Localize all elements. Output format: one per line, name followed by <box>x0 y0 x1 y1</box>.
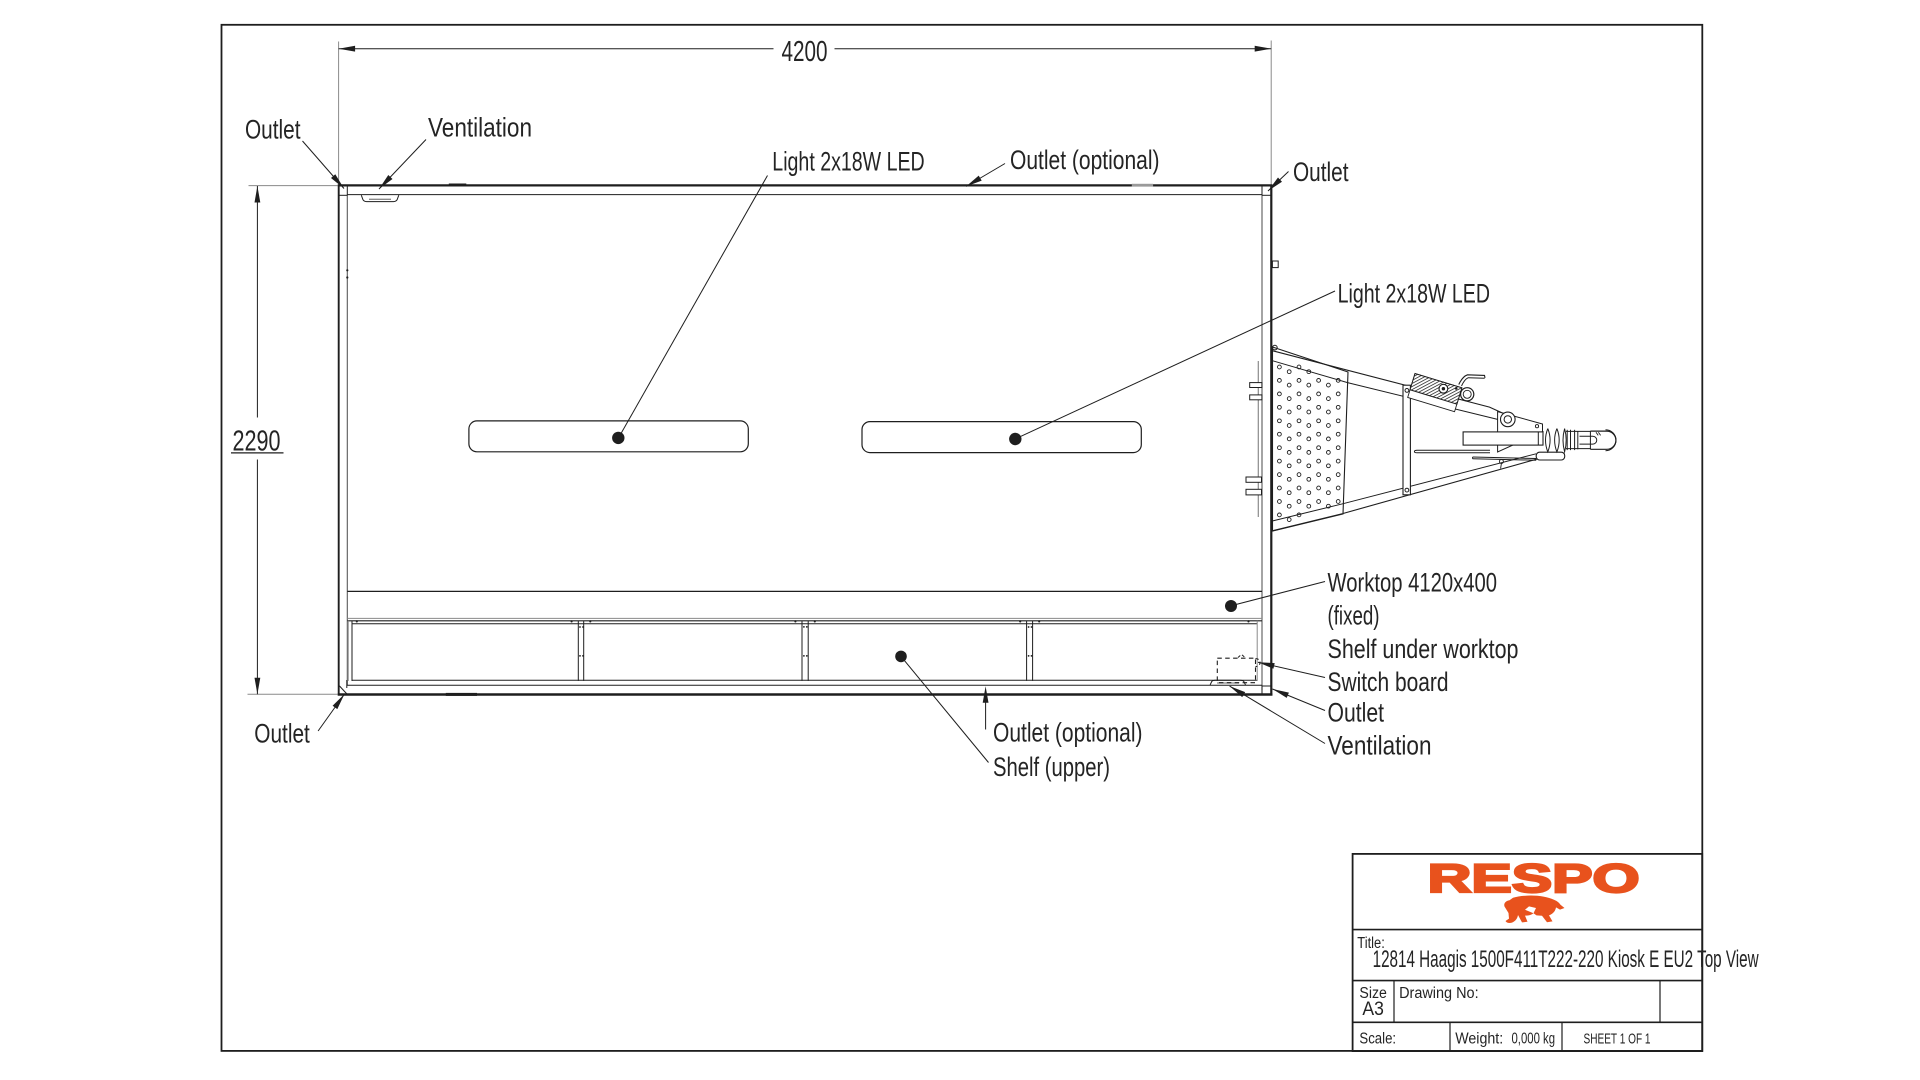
svg-text:Outlet (optional): Outlet (optional) <box>1010 145 1160 175</box>
svg-text:Ventilation: Ventilation <box>1328 731 1432 761</box>
svg-text:Shelf under worktop: Shelf under worktop <box>1328 634 1519 664</box>
svg-text:Worktop 4120x400: Worktop 4120x400 <box>1328 567 1498 597</box>
svg-text:12814 Haagis 1500F411T222-220: 12814 Haagis 1500F411T222-220 Kiosk E EU… <box>1373 946 1759 973</box>
svg-text:Outlet: Outlet <box>245 115 301 145</box>
svg-text:4200: 4200 <box>782 36 828 68</box>
svg-text:Ventilation: Ventilation <box>428 113 532 143</box>
svg-text:Outlet (optional): Outlet (optional) <box>993 718 1143 748</box>
svg-text:SHEET 1 OF 1: SHEET 1 OF 1 <box>1584 1032 1651 1048</box>
svg-text:Outlet: Outlet <box>1293 157 1349 187</box>
svg-text:Outlet: Outlet <box>1328 698 1385 728</box>
svg-text:Light 2x18W LED: Light 2x18W LED <box>772 147 924 177</box>
svg-text:Drawing No:: Drawing No: <box>1399 985 1479 1002</box>
svg-text:RESPO: RESPO <box>1428 857 1640 901</box>
svg-text:Switch board: Switch board <box>1328 667 1449 697</box>
svg-text:Light 2x18W LED: Light 2x18W LED <box>1338 279 1490 309</box>
svg-text:0,000 kg: 0,000 kg <box>1512 1031 1556 1048</box>
svg-text:Shelf (upper): Shelf (upper) <box>993 752 1110 782</box>
svg-text:Scale:: Scale: <box>1359 1031 1396 1048</box>
svg-text:Outlet: Outlet <box>254 719 310 749</box>
svg-text:(fixed): (fixed) <box>1328 601 1380 631</box>
svg-text:A3: A3 <box>1362 998 1384 1020</box>
svg-text:Weight:: Weight: <box>1455 1031 1503 1048</box>
